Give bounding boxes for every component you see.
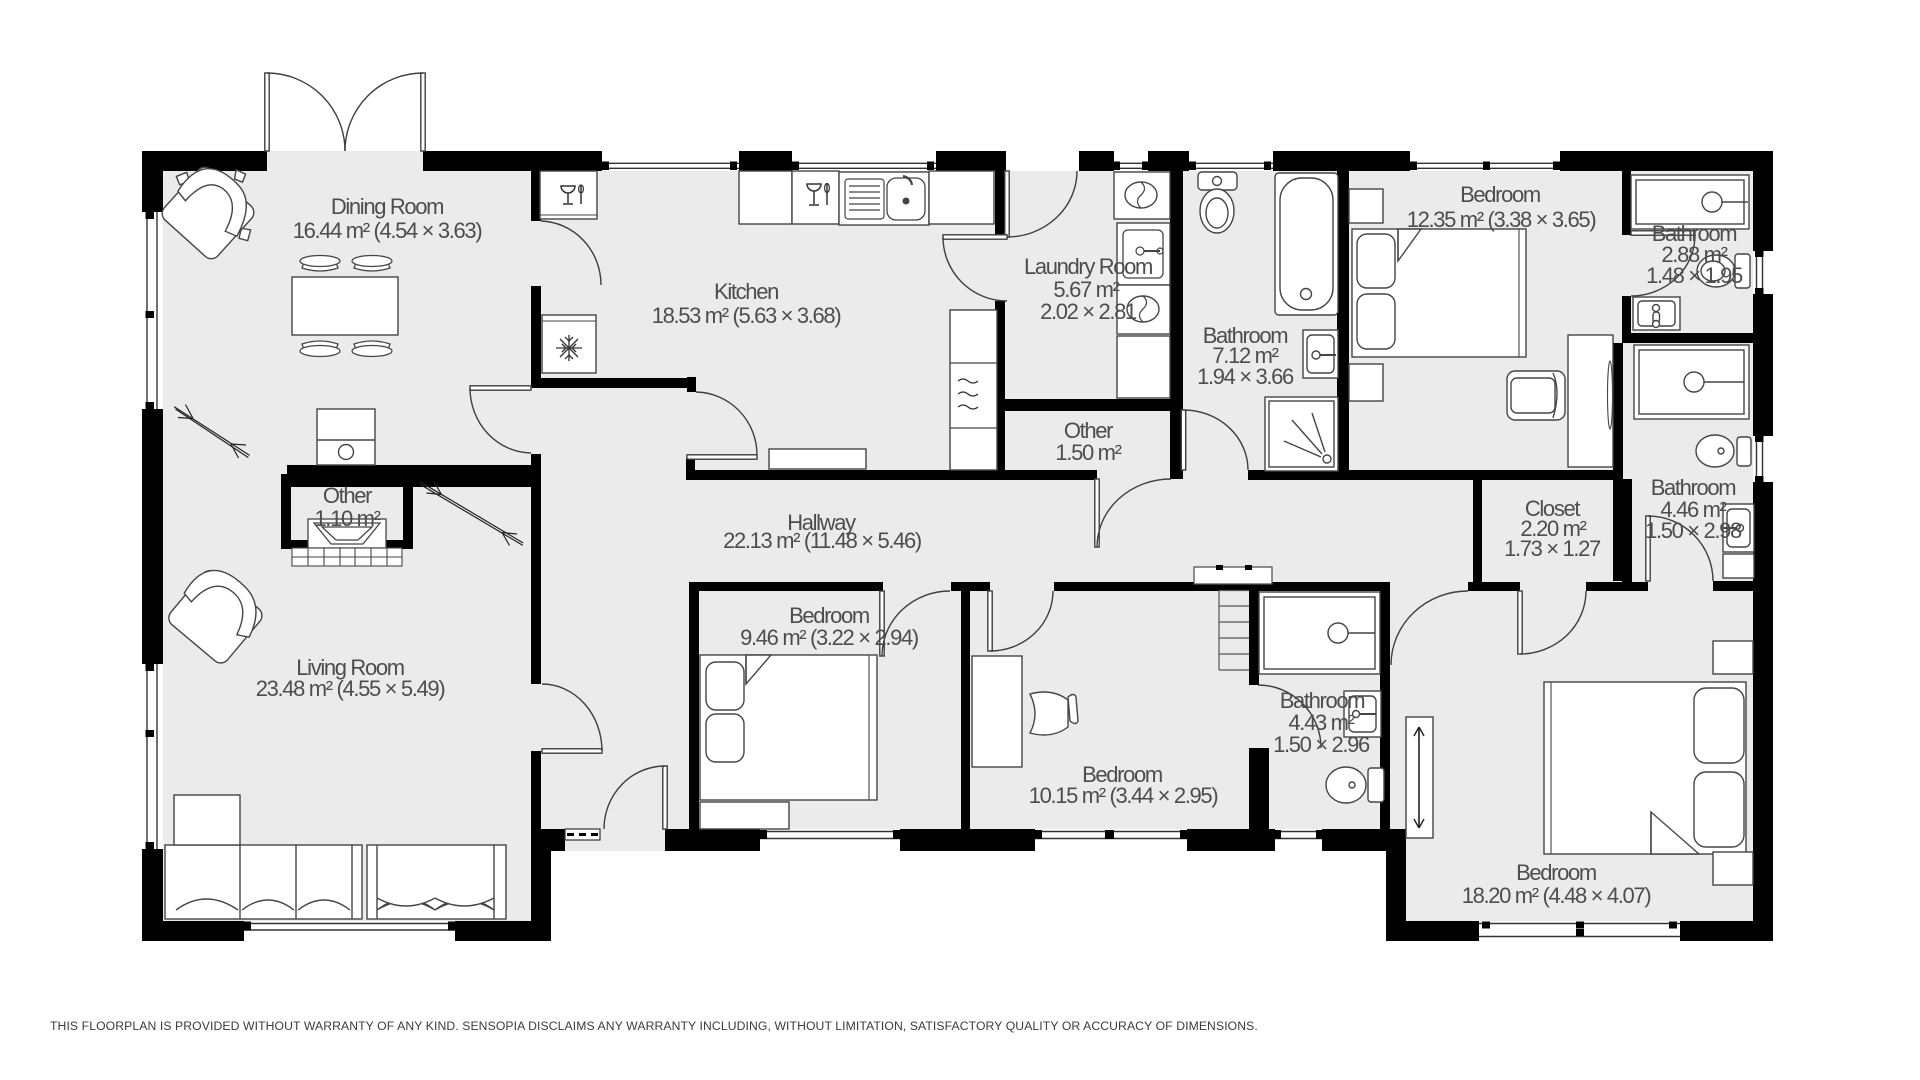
svg-text:Kitchen: Kitchen xyxy=(714,279,778,304)
svg-text:Laundry Room: Laundry Room xyxy=(1024,254,1152,279)
svg-text:23.48 m² (4.55 × 5.49): 23.48 m² (4.55 × 5.49) xyxy=(256,676,445,701)
svg-text:9.46 m² (3.22 × 2.94): 9.46 m² (3.22 × 2.94) xyxy=(740,625,918,650)
svg-text:12.35 m² (3.38 × 3.65): 12.35 m² (3.38 × 3.65) xyxy=(1407,207,1596,232)
svg-text:1.73 × 1.27: 1.73 × 1.27 xyxy=(1504,536,1601,561)
svg-text:1.50 × 2.98: 1.50 × 2.98 xyxy=(1645,518,1742,543)
svg-text:1.48 × 1.95: 1.48 × 1.95 xyxy=(1646,263,1743,288)
svg-text:2.02 × 2.81: 2.02 × 2.81 xyxy=(1040,299,1137,324)
svg-text:1.50 m²: 1.50 m² xyxy=(1055,440,1121,465)
svg-text:22.13 m² (11.48 × 5.46): 22.13 m² (11.48 × 5.46) xyxy=(723,528,921,553)
svg-text:THIS FLOORPLAN IS PROVIDED WIT: THIS FLOORPLAN IS PROVIDED WITHOUT WARRA… xyxy=(50,1019,1258,1033)
svg-text:Bedroom: Bedroom xyxy=(1460,182,1540,207)
svg-text:1.94 × 3.66: 1.94 × 3.66 xyxy=(1197,364,1294,389)
svg-text:10.15 m² (3.44 × 2.95): 10.15 m² (3.44 × 2.95) xyxy=(1029,783,1218,808)
svg-text:18.53 m² (5.63 × 3.68): 18.53 m² (5.63 × 3.68) xyxy=(652,303,841,328)
svg-text:Dining Room: Dining Room xyxy=(331,194,443,219)
svg-text:18.20 m² (4.48 × 4.07): 18.20 m² (4.48 × 4.07) xyxy=(1462,883,1651,908)
svg-text:Other: Other xyxy=(323,483,372,508)
svg-text:Bedroom: Bedroom xyxy=(1516,860,1596,885)
svg-text:1.10 m²: 1.10 m² xyxy=(314,506,380,531)
svg-text:1.50 × 2.96: 1.50 × 2.96 xyxy=(1273,732,1370,757)
svg-text:16.44 m² (4.54 × 3.63): 16.44 m² (4.54 × 3.63) xyxy=(293,218,482,243)
